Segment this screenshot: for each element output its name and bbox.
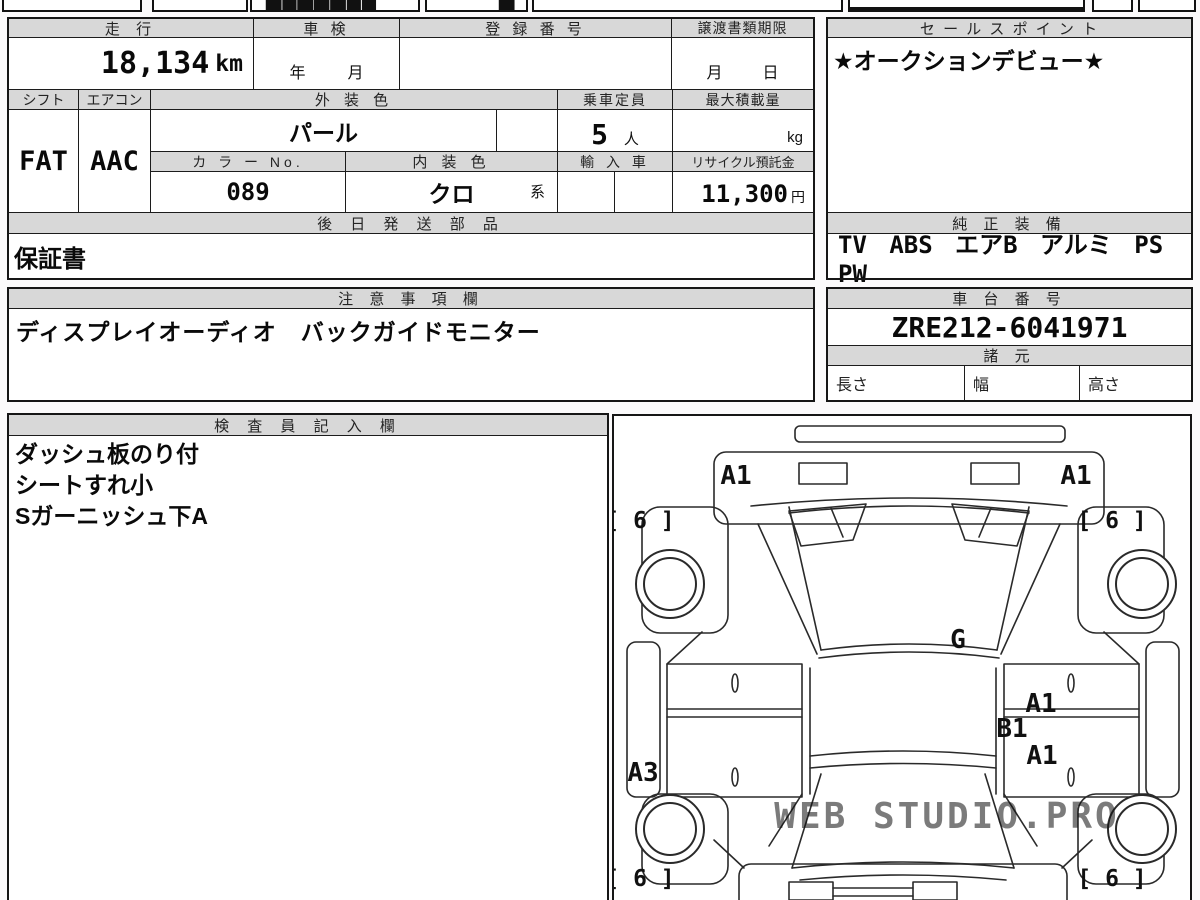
interior-color-header: 内 装 色: [345, 151, 558, 172]
clipped-cell: [152, 0, 248, 12]
windshield: [758, 507, 1060, 658]
cowl-and-wipers: [789, 504, 1029, 546]
interior-color-suffix: 系: [530, 181, 545, 202]
import-car-header: 輸 入 車: [557, 151, 673, 172]
recycle-deposit-cell: 11,300 円: [672, 171, 814, 213]
transfer-deadline-header: 譲渡書類期限: [671, 18, 814, 38]
damage-label-door-mid: B1: [996, 714, 1027, 744]
shift-cell: FAT: [8, 109, 79, 213]
exterior-color-sub-cell: [496, 109, 558, 152]
mileage-value: 18,134: [101, 46, 209, 81]
recycle-fee-value: 11,300: [701, 180, 788, 208]
registration-no-cell: [399, 37, 672, 90]
sales-point-value: ★オークションデビュー★: [828, 38, 1191, 76]
inspector-line: シートすれ小: [9, 470, 607, 501]
later-parts-cell: 保証書: [8, 233, 814, 279]
max-load-header: 最大積載量: [672, 89, 814, 110]
inspector-cell: ダッシュ板のり付 シートすれ小 Sガーニッシュ下A: [8, 435, 608, 900]
chassis-no-cell: ZRE212-6041971: [827, 308, 1192, 346]
later-parts-header: 後 日 発 送 部 品: [8, 212, 814, 234]
sales-point-cell: ★オークションデビュー★: [827, 37, 1192, 213]
clipped-cell: [1138, 0, 1196, 12]
mileage-header: 走 行: [8, 18, 254, 38]
damage-label-front-right: A1: [1060, 461, 1091, 491]
sales-point-header: セ ー ル ス ポ イ ン ト: [827, 18, 1192, 38]
transfer-day-label: 日: [763, 59, 779, 83]
damage-label-door-lower: A1: [1026, 741, 1057, 771]
chassis-no-header: 車 台 番 号: [827, 288, 1192, 309]
capacity-cell: 5 人: [557, 109, 673, 152]
car-diagram-panel: WEB STUDIO.PRO A1 A1 [ 6 ] [ 6 ] G A1 B1…: [612, 414, 1192, 900]
caution-notes-cell: ディスプレイオーディオ バックガイドモニター: [8, 308, 814, 401]
inspector-line: ダッシュ板のり付: [9, 436, 607, 470]
max-load-cell: kg: [672, 109, 814, 152]
spec-width-cell: 幅: [964, 365, 1080, 401]
exterior-color-header: 外 装 色: [150, 89, 558, 110]
roof-strip: [795, 426, 1065, 442]
specs-header: 諸 元: [827, 345, 1192, 366]
wheel-grade-front-left: [ 6 ]: [614, 508, 675, 534]
inspection-year-label: 年: [289, 59, 305, 83]
mileage-unit: km: [215, 51, 243, 77]
inspection-header: 車 検: [253, 18, 400, 38]
transfer-deadline-cell: 月 日: [671, 37, 814, 90]
watermark-text: WEB STUDIO.PRO: [774, 796, 1119, 837]
exterior-color-cell: パール: [150, 109, 497, 152]
inspector-line: Sガーニッシュ下A: [9, 501, 607, 532]
later-parts-value: 保証書: [9, 239, 86, 274]
spec-length-label: 長さ: [828, 371, 868, 395]
max-load-unit: kg: [787, 129, 803, 146]
aircon-value: AAC: [90, 146, 139, 177]
clipped-cell: [1092, 0, 1133, 12]
damage-label-roof: G: [950, 625, 966, 655]
registration-no-header: 登 録 番 号: [399, 18, 672, 38]
caution-notes-value: ディスプレイオーディオ バックガイドモニター: [9, 309, 813, 347]
spec-length-cell: 長さ: [827, 365, 965, 401]
shift-value: FAT: [19, 146, 68, 177]
capacity-header: 乗車定員: [557, 89, 673, 110]
clipped-cell: [532, 0, 843, 12]
recycle-fee-unit: 円: [791, 187, 805, 207]
interior-color-cell: クロ 系: [345, 171, 558, 213]
transfer-month-label: 月: [706, 59, 722, 83]
inspector-header: 検 査 員 記 入 欄: [8, 414, 608, 436]
clipped-cell: ▆█▇▅▇██: [250, 0, 420, 12]
wheel-grade-rear-left: [ 6 ]: [614, 866, 675, 892]
clipped-text-fragment: ▆: [499, 0, 515, 12]
clipped-cell: ▆: [425, 0, 528, 12]
spec-height-cell: 高さ: [1079, 365, 1192, 401]
color-no-value: 089: [226, 178, 269, 206]
chassis-no-value: ZRE212-6041971: [891, 311, 1127, 344]
damage-label-sill-left: A3: [627, 758, 658, 788]
doors: [667, 632, 1139, 797]
front-bumper: [714, 452, 1104, 524]
spec-width-label: 幅: [965, 371, 989, 395]
car-diagram: WEB STUDIO.PRO A1 A1 [ 6 ] [ 6 ] G A1 B1…: [614, 416, 1190, 900]
damage-label-door-upper: A1: [1025, 689, 1056, 719]
shift-header: シフト: [8, 89, 79, 110]
mileage-cell: 18,134 km: [8, 37, 254, 90]
interior-color-value: クロ: [429, 175, 475, 209]
damage-label-front-left: A1: [720, 461, 751, 491]
rear-bumper: [714, 840, 1092, 900]
import-car-sub-cell: [614, 171, 673, 213]
exterior-color-value: パール: [289, 114, 358, 148]
aircon-header: エアコン: [78, 89, 151, 110]
color-no-cell: 089: [150, 171, 346, 213]
inspection-cell: 年 月: [253, 37, 400, 90]
clipped-cell: [848, 0, 1085, 12]
import-car-cell: [557, 171, 615, 213]
auction-sheet: ▆█▇▅▇██ ▆ 走 行 車 検 登 録 番 号 譲渡書類期限 18,134 …: [0, 0, 1200, 900]
capacity-value: 5: [591, 118, 608, 151]
inspection-month-label: 月: [348, 59, 364, 83]
wheel-grade-front-right: [ 6 ]: [1077, 508, 1146, 534]
cabin-roof: [810, 668, 996, 794]
side-sills: [627, 642, 1179, 797]
color-no-header: カ ラ ー No.: [150, 151, 346, 172]
aircon-cell: AAC: [78, 109, 151, 213]
recycle-deposit-header: リサイクル預託金: [672, 151, 814, 172]
capacity-unit: 人: [624, 128, 639, 149]
clipped-cell: [2, 0, 142, 12]
spec-height-label: 高さ: [1080, 371, 1120, 395]
genuine-equipment-value: TV ABS エアB アルミ PS PW: [828, 225, 1191, 288]
wheel-grade-rear-right: [ 6 ]: [1077, 866, 1146, 892]
caution-notes-header: 注 意 事 項 欄: [8, 288, 814, 309]
genuine-equipment-cell: TV ABS エアB アルミ PS PW: [827, 233, 1192, 279]
clipped-text-fragment: ▆█▇▅▇██: [266, 0, 377, 12]
